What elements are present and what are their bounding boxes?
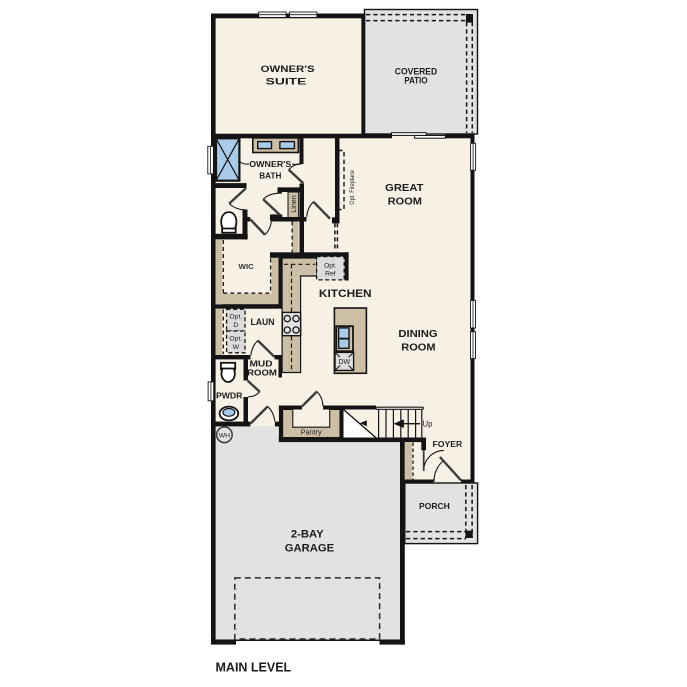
svg-text:2-BAY: 2-BAY (291, 528, 325, 540)
svg-text:FOYER: FOYER (433, 440, 463, 449)
svg-text:WH: WH (219, 433, 230, 440)
svg-text:DW: DW (338, 359, 350, 366)
svg-text:MAIN LEVEL: MAIN LEVEL (216, 660, 292, 675)
svg-text:PATIO: PATIO (404, 76, 427, 86)
svg-text:PWDR: PWDR (216, 390, 242, 400)
svg-text:WIC: WIC (239, 264, 254, 271)
svg-text:DINING: DINING (398, 329, 437, 340)
svg-text:PORCH: PORCH (419, 501, 450, 511)
svg-text:OWNER'S: OWNER'S (249, 159, 291, 169)
svg-text:Opt.: Opt. (324, 262, 337, 269)
svg-text:BATH: BATH (259, 170, 281, 180)
svg-text:Up: Up (423, 419, 434, 428)
svg-text:Opt.: Opt. (229, 314, 242, 321)
svg-text:Opt.: Opt. (229, 336, 242, 343)
svg-text:KITCHEN: KITCHEN (319, 288, 372, 300)
svg-text:D: D (233, 322, 238, 329)
svg-text:OWNER'S: OWNER'S (261, 64, 315, 74)
svg-text:Ref: Ref (325, 271, 336, 278)
svg-text:ROOM: ROOM (401, 342, 435, 353)
svg-text:GREAT: GREAT (385, 183, 423, 194)
svg-text:Opt. Fireplace: Opt. Fireplace (349, 170, 356, 205)
svg-text:ROOM: ROOM (388, 197, 422, 208)
svg-text:SUITE: SUITE (266, 76, 307, 86)
svg-text:W: W (233, 344, 240, 351)
svg-text:LAUN: LAUN (251, 317, 275, 327)
svg-text:Pantry: Pantry (301, 430, 322, 437)
svg-text:GARAGE: GARAGE (285, 542, 334, 554)
svg-text:Linen: Linen (289, 195, 298, 213)
svg-text:ROOM: ROOM (247, 367, 277, 377)
